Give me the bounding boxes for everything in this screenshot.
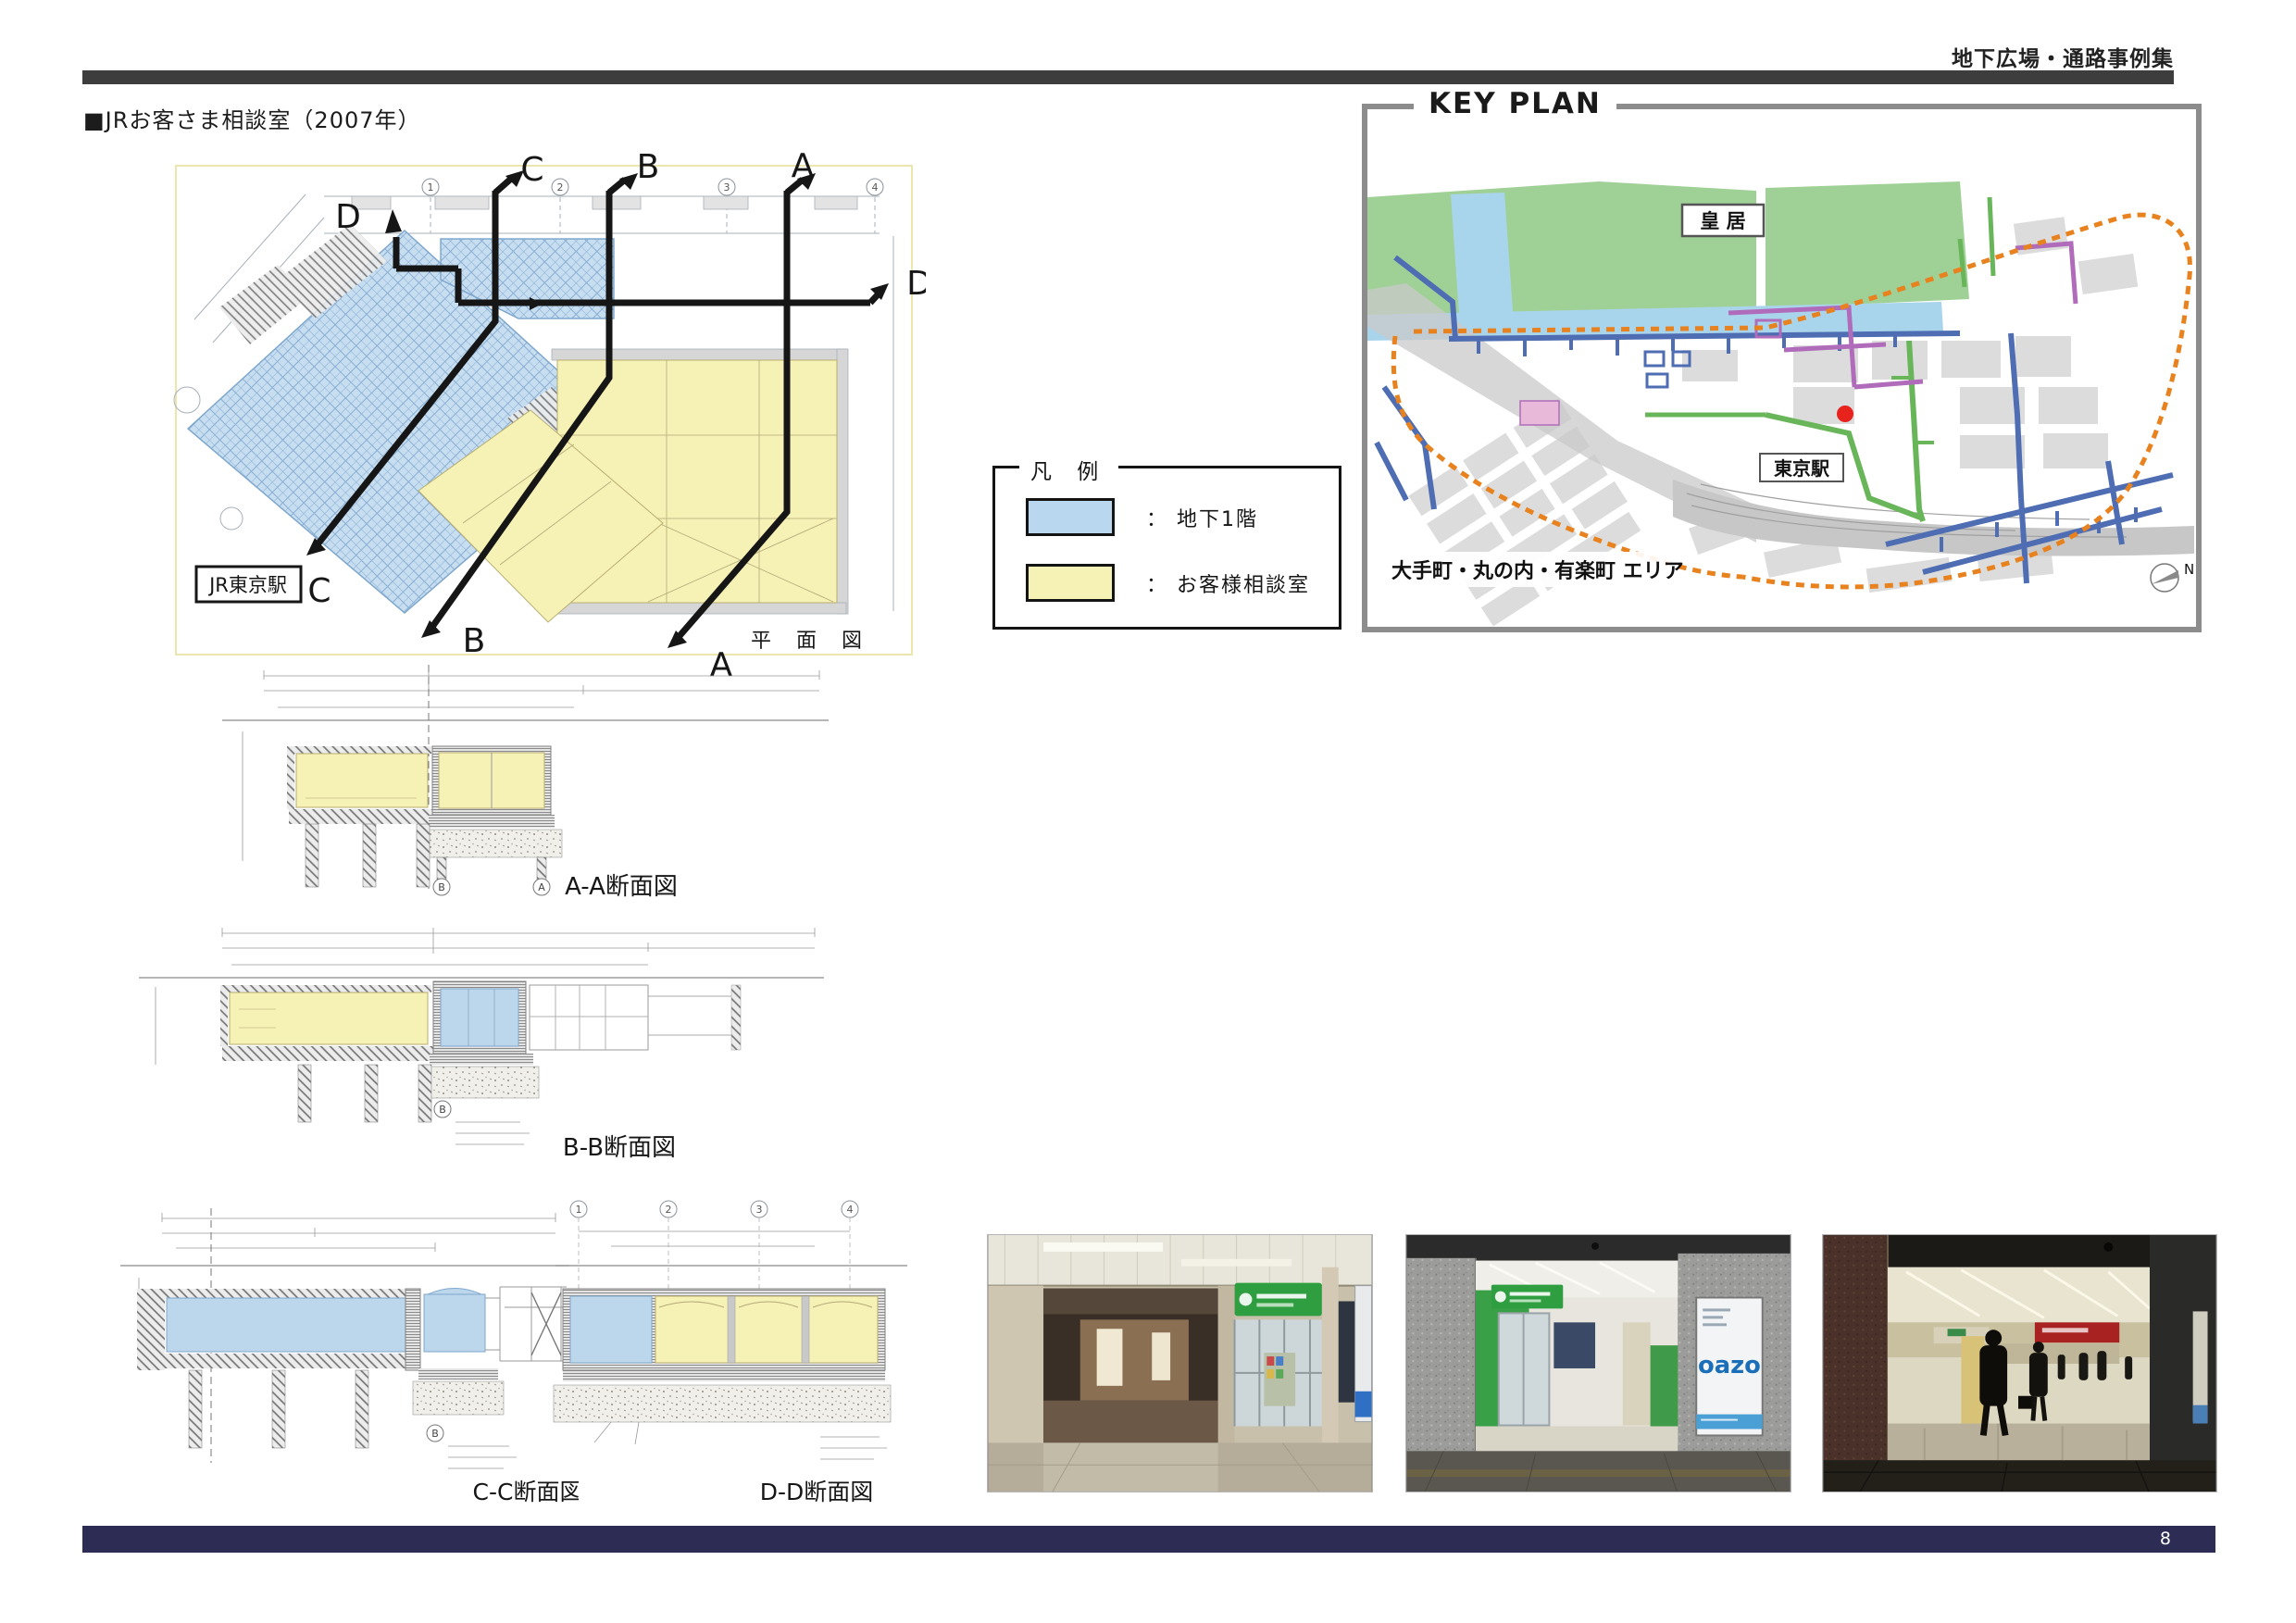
footer-bar: 8 [82,1526,2215,1553]
p1-white-panel [1355,1286,1372,1422]
map-pink-block [1520,401,1559,425]
p2-left-granite-pillar [1406,1258,1475,1469]
aa-grid-b: B [438,881,445,893]
area-label: 大手町・丸の内・有楽町 エリア [1382,552,1684,587]
section-letter-d-left: D [335,198,361,236]
legend-text-1: 地下1階 [1177,508,1258,531]
tokyo-station-text: 東京駅 [1774,457,1829,480]
imperial-palace-text: 皇 居 [1700,210,1745,232]
page-number: 8 [2160,1529,2171,1549]
p1-ceiling [988,1235,1371,1286]
p1-left-wall [988,1286,1043,1452]
section-letter-c-top: C [520,151,543,189]
legend-swatch-basement [1026,498,1115,536]
p3-bright-concourse [1888,1267,2150,1460]
legend-title: 凡 例 [1019,454,1118,485]
photo-concourse-view [1822,1234,2217,1492]
top-rule-bar [82,70,2174,84]
p2-corridor [1476,1261,1678,1445]
p3-left-wall [1824,1235,1888,1492]
p1-floor [988,1442,1371,1492]
bb-left-room [220,985,433,1061]
plan-wall-teeth [352,196,857,209]
key-plan-map: 皇 居 東京駅 大手町・丸の内・有楽町 エリア N [1367,109,2196,627]
bb-grid-bubble: B [434,1101,451,1117]
cc-main-room [137,1289,417,1370]
dd-basement-room [570,1296,652,1363]
plan-grid-1: 1 [428,181,434,194]
compass-n: N [2184,561,2194,578]
aa-right-room [421,746,562,857]
station-label: JR東京駅 [207,574,287,596]
legend-label-basement: ： 地下1階 [1146,503,1258,532]
cc-grid-bubble: B [427,1425,443,1442]
p1-pillar [1322,1267,1339,1452]
bb-middle-room [424,981,539,1098]
plan-grid-3: 3 [724,181,730,194]
cc-vestibule [406,1289,504,1416]
page-header: 地下広場・通路事例集 [1481,41,2174,72]
dd-leader-notes [594,1422,887,1459]
section-aa-drawing: B A A-A断面図 [167,659,833,905]
p1-office-front [1218,1283,1322,1452]
legend-colon-2: ： [1146,574,1168,597]
dd-grid-4: 4 [847,1204,854,1216]
section-letter-a-top: A [792,148,815,185]
plan-grid-4: 4 [872,181,879,194]
page-title: ■JRお客さま相談室（2007年） [83,102,421,134]
legend-colon-1: ： [1146,508,1168,531]
aa-grid-bubbles: B A [433,879,550,895]
site-marker [1837,406,1853,422]
section-letter-b-bottom: B [463,622,486,660]
dd-grid-2: 2 [666,1204,672,1216]
legend-item-consult: ： お客様相談室 [1026,564,1310,602]
legend-item-basement: ： 地下1階 [1026,498,1258,536]
section-letter-d-right: D [906,265,926,303]
dd-grid-1: 1 [576,1204,582,1216]
p2-oazo-poster: oazo [1696,1298,1762,1436]
floor-plan-drawing: 1 2 3 4 C B A [171,148,926,680]
p1-opening-corridor [1043,1289,1218,1443]
dd-dimension-lines [579,1231,850,1246]
legend-swatch-consult [1026,564,1115,602]
map-park-water [1367,181,1969,341]
legend-text-2: お客様相談室 [1177,574,1310,597]
section-cc-drawing: B C-C断面図 [111,1200,579,1509]
key-plan-frame: KEY PLAN [1362,104,2202,632]
aa-grid-a: A [538,881,545,893]
section-aa-label: A-A断面図 [565,873,678,901]
tokyo-station-label: 東京駅 [1760,454,1843,481]
dd-box [554,1289,891,1422]
section-letter-c-bottom: C [307,572,331,610]
imperial-palace-label: 皇 居 [1682,205,1764,236]
section-letter-b-top: B [637,148,660,186]
section-dd-label: D-D断面図 [760,1479,874,1505]
legend-label-consult: ： お客様相談室 [1146,568,1310,598]
section-dd-drawing: 1 2 3 4 D-D断面図 [544,1192,917,1509]
cc-columns [189,1370,368,1448]
aa-left-room [287,746,435,824]
legend-box: 凡 例 ： 地下1階 ： お客様相談室 [992,466,1341,630]
plan-grid-2: 2 [557,181,564,194]
photo-consultation-room-entrance [987,1234,1373,1492]
cc-grid-b: B [431,1428,439,1440]
dd-grid-3: 3 [756,1204,763,1216]
key-plan-title: KEY PLAN [1414,87,1616,120]
p1-dark-poster [1339,1301,1357,1402]
photo-oazo-passage: oazo [1405,1234,1791,1492]
bb-leader-notes [455,1122,530,1144]
section-bb-drawing: B B-B断面図 [130,918,833,1176]
cc-leader-notes [448,1446,517,1468]
plan-caption: 平 面 図 [751,630,871,653]
area-label-text: 大手町・丸の内・有楽町 エリア [1391,559,1684,583]
bb-columns [298,1065,431,1122]
bb-right-structure [530,985,741,1050]
section-bb-label: B-B断面図 [563,1134,676,1162]
bb-grid-b: B [439,1104,446,1116]
dd-consult-rooms [655,1296,878,1363]
p2-oazo-text: oazo [1698,1352,1761,1380]
